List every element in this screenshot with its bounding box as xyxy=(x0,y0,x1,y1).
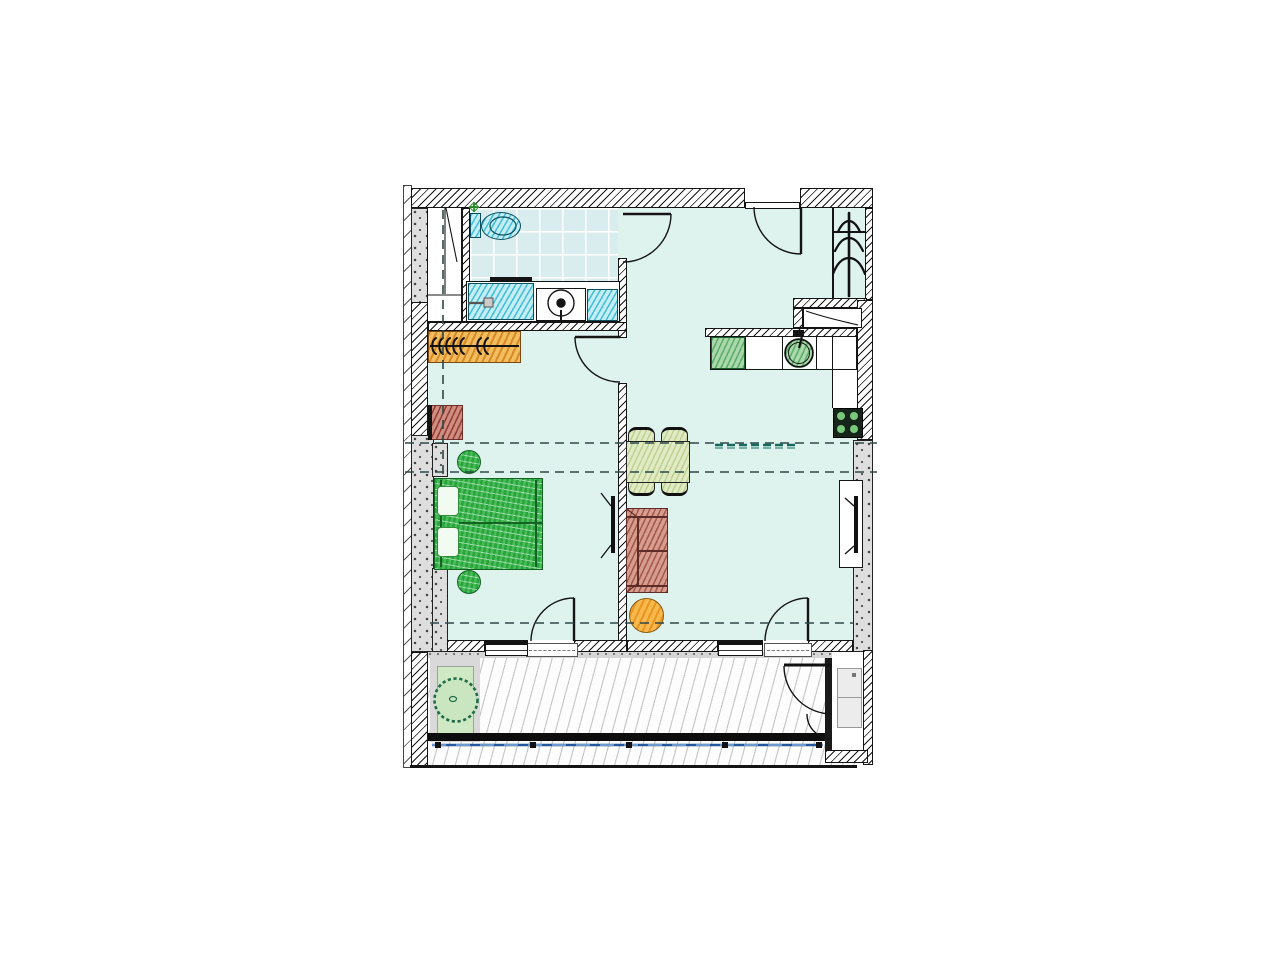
pillow-2 xyxy=(437,527,459,557)
bedroom-window xyxy=(485,644,528,656)
top-wall-left xyxy=(411,188,745,208)
burner-4 xyxy=(850,425,858,433)
bottom-wall-living-left xyxy=(627,640,718,652)
shoe-cabinet xyxy=(803,308,862,328)
balcony-closet-left-wall xyxy=(825,658,832,750)
tv-console-living xyxy=(839,480,863,568)
entrance-threshold xyxy=(745,202,800,209)
left-wall-mid xyxy=(411,302,428,436)
sofa-arm-top xyxy=(627,516,668,518)
burner-2 xyxy=(850,412,858,420)
living-window xyxy=(718,644,763,656)
hall-stub-wall xyxy=(793,298,867,308)
washing-machine xyxy=(536,288,586,321)
bed-foot-line xyxy=(535,480,537,567)
top-wall-right xyxy=(800,188,873,208)
balcony-closet-shelf xyxy=(837,668,862,728)
pouf-1 xyxy=(457,450,481,474)
counter-divider-4 xyxy=(832,337,833,369)
pillow-1 xyxy=(437,486,459,516)
coat-closet-divider xyxy=(832,208,834,298)
sofa-back-line xyxy=(637,517,639,586)
counter-divider-2 xyxy=(782,337,783,369)
living-window-midline xyxy=(719,650,762,651)
bottom-wall-living-right xyxy=(808,640,853,652)
sofa-seat-line xyxy=(637,550,667,552)
counter-divider-1 xyxy=(745,337,746,369)
bottom-wall-bedroom-left xyxy=(447,640,485,652)
balcony-bottom-edge xyxy=(410,765,857,768)
niche-left-jamb xyxy=(793,308,803,328)
toilet-tank xyxy=(470,213,481,238)
toilet-bowl xyxy=(481,212,521,240)
kitchen-sink xyxy=(785,339,813,367)
vanity-shelf-line xyxy=(490,277,532,281)
bedroom-balcony-threshold xyxy=(526,643,578,657)
planter xyxy=(437,666,474,734)
burner-3 xyxy=(837,425,845,433)
balcony-slab-band xyxy=(428,733,825,741)
vanity-basin-right xyxy=(587,289,618,321)
balcony-right-wall xyxy=(863,650,873,765)
balcony-left-wall xyxy=(411,652,428,768)
bedroom-desk-edge xyxy=(428,405,432,440)
dining-table xyxy=(626,441,690,483)
kitchen-base-cabinet xyxy=(711,337,745,369)
vanity-basin-left xyxy=(468,283,534,320)
sofa-arm-bottom xyxy=(627,585,668,587)
balcony-deck xyxy=(428,652,858,765)
coat-closet-shelf-line xyxy=(833,231,865,233)
burner-1 xyxy=(837,412,845,420)
closet-shelf-knob xyxy=(852,673,856,677)
coffee-table xyxy=(629,598,664,633)
balcony-closet-bottom-wall xyxy=(825,750,868,763)
left-wall-concrete xyxy=(411,435,434,652)
floor-plan-canvas: { "document": { "kind": "architectural f… xyxy=(0,0,1280,960)
right-wall-upper xyxy=(865,208,873,300)
bathroom-shaft-cabinet xyxy=(427,207,462,322)
wardrobe xyxy=(428,331,521,363)
threshold-dash-2 xyxy=(767,650,809,651)
stove xyxy=(833,408,863,438)
bottom-wall-bedroom-right xyxy=(574,640,627,652)
wardrobe-rail xyxy=(430,345,519,347)
closet-shelf-midline xyxy=(838,697,861,698)
bedroom-window-midline xyxy=(486,650,527,651)
bed-center-line xyxy=(459,522,542,524)
bathroom-bottom-wall xyxy=(428,322,627,331)
living-balcony-threshold xyxy=(764,643,812,657)
left-pilaster-1 xyxy=(432,443,448,477)
left-pilaster-2 xyxy=(432,568,448,652)
sofa xyxy=(626,508,668,593)
threshold-dash-1 xyxy=(529,650,575,651)
counter-return xyxy=(832,370,857,408)
bed xyxy=(434,478,543,570)
pouf-2 xyxy=(457,570,481,594)
counter-divider-3 xyxy=(816,337,817,369)
left-wall-upper xyxy=(411,208,428,304)
bedroom-desk xyxy=(428,405,463,440)
